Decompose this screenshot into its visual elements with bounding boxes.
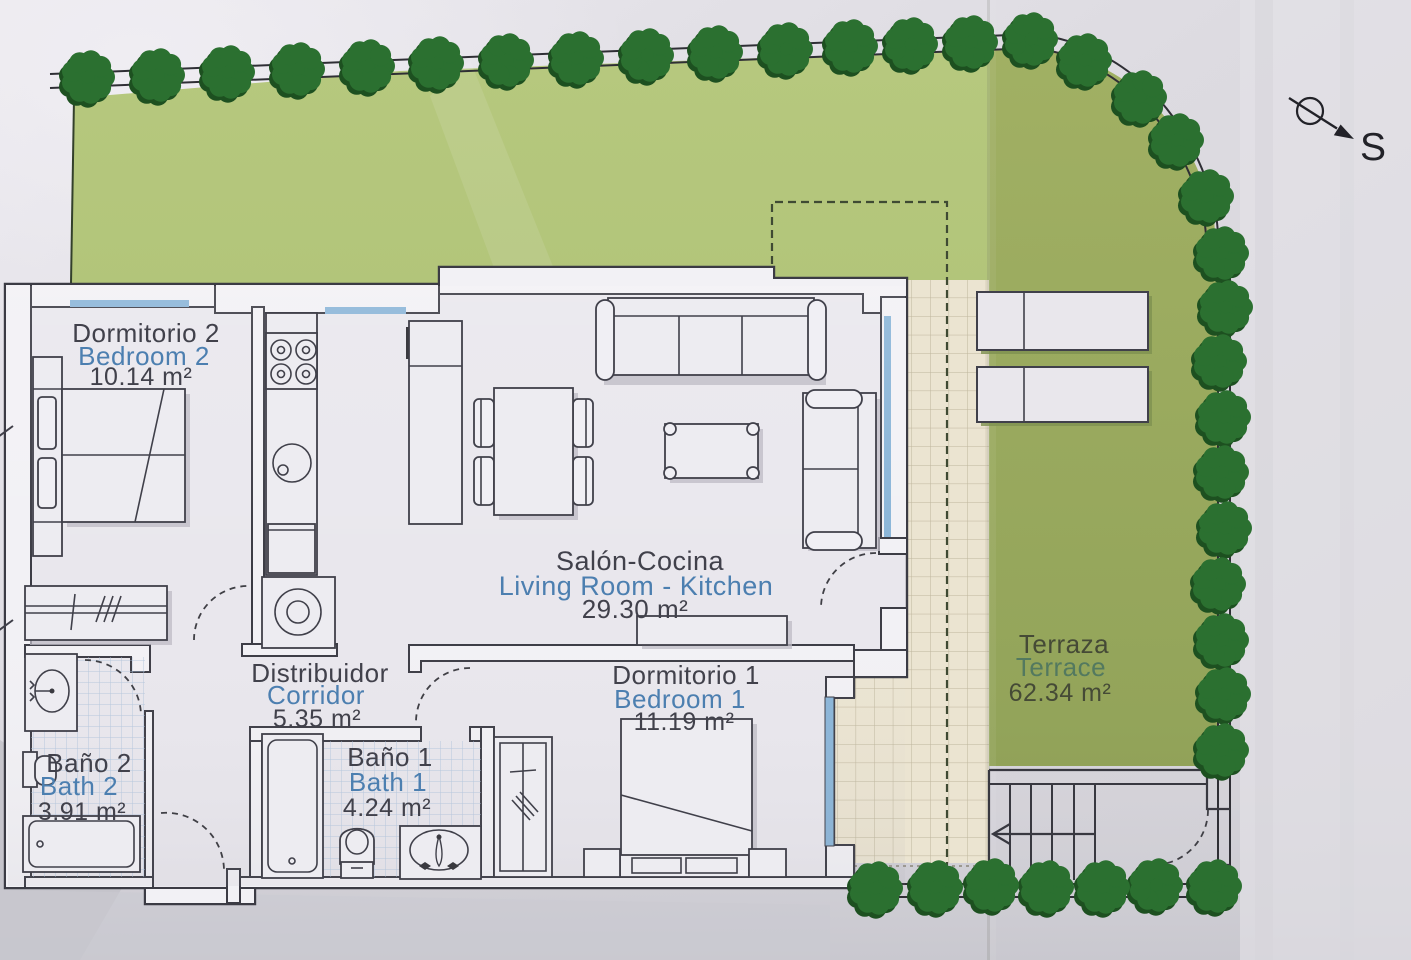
svg-text:4.24 m²: 4.24 m² <box>343 794 431 822</box>
svg-text:62.34 m²: 62.34 m² <box>1009 679 1112 707</box>
svg-text:Bath 1: Bath 1 <box>349 767 427 797</box>
svg-text:Bath 2: Bath 2 <box>40 771 118 801</box>
svg-text:29.30 m²: 29.30 m² <box>582 594 689 624</box>
svg-text:5.35 m²: 5.35 m² <box>273 705 361 733</box>
svg-text:Terrace: Terrace <box>1016 652 1106 682</box>
svg-text:11.19 m²: 11.19 m² <box>634 708 735 736</box>
svg-text:3.91 m²: 3.91 m² <box>38 798 126 826</box>
svg-text:S: S <box>1360 126 1386 169</box>
svg-text:10.14 m²: 10.14 m² <box>90 363 193 391</box>
